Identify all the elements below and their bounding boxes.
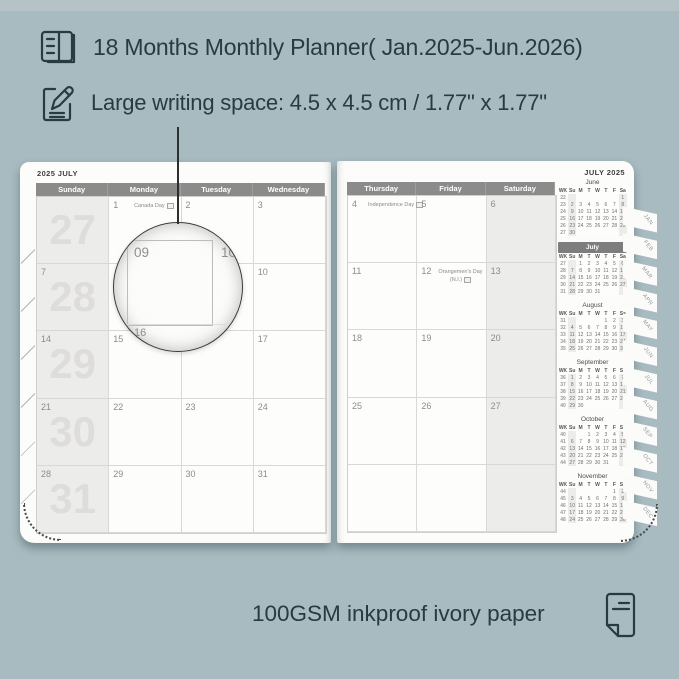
mini-day-number: [568, 317, 576, 324]
day-header-friday: Friday: [416, 182, 485, 195]
mini-day-number: 8: [602, 324, 610, 331]
mini-header-label: M: [576, 481, 584, 488]
mini-week-number: 48: [558, 516, 568, 523]
mini-day-number: 18: [593, 388, 601, 395]
mini-day-number: 14: [602, 502, 610, 509]
tab-may: MAY: [623, 313, 657, 340]
mini-week-number: 31: [558, 317, 568, 324]
day-cell: 5: [417, 196, 486, 263]
mini-day-number: 2: [593, 431, 601, 438]
mini-day-number: 2: [585, 260, 593, 267]
mini-week-number: 47: [558, 509, 568, 516]
mini-day-number: 10: [593, 267, 601, 274]
mini-header-label: Su: [568, 367, 576, 374]
day-number: 11: [352, 266, 361, 276]
holiday-note: Independence Day: [368, 201, 414, 209]
mini-day-number: 12: [585, 502, 593, 509]
tab-label: SEP: [642, 426, 654, 440]
tab-sep: SEP: [623, 420, 657, 447]
mini-day-number: 19: [593, 215, 601, 222]
mini-day-number: 28: [593, 345, 601, 352]
feature-writing-space-text: Large writing space: 4.5 x 4.5 cm / 1.77…: [91, 90, 547, 116]
mini-day-number: 13: [610, 381, 618, 388]
mini-day-number: 2: [568, 201, 576, 208]
mini-day-number: 16: [593, 445, 601, 452]
mini-day-number: [610, 459, 618, 466]
day-cell: [487, 465, 556, 532]
mini-month-grid: WKSuMTWTFSa36123456737891011121314381516…: [558, 367, 627, 409]
mini-day-number: 5: [610, 260, 618, 267]
mini-day-number: 6: [602, 201, 610, 208]
mini-day-number: 28: [610, 222, 618, 229]
magnifier-pointer-line: [177, 127, 179, 224]
mini-day-number: 14: [610, 208, 618, 215]
mini-month-august: AugustWKSuMTWTFSa31123324567891033111213…: [558, 301, 627, 352]
mini-day-number: 14: [593, 331, 601, 338]
mini-week-number: 29: [558, 274, 568, 281]
day-cell: 31: [254, 466, 326, 533]
mini-day-number: 24: [602, 452, 610, 459]
mini-day-number: [593, 317, 601, 324]
mini-day-number: [593, 488, 601, 495]
mini-day-number: 4: [602, 260, 610, 267]
mini-day-number: 18: [568, 338, 576, 345]
mini-month-september: SeptemberWKSuMTWTFSa36123456737891011121…: [558, 358, 627, 409]
tab-label: OCT: [641, 453, 654, 467]
mini-day-number: 13: [593, 502, 601, 509]
mini-day-number: 4: [585, 201, 593, 208]
mini-header-label: W: [593, 310, 601, 317]
tab-aug: AUG: [623, 393, 657, 420]
day-number: 10: [258, 267, 268, 277]
mini-day-number: 31: [602, 459, 610, 466]
day-cell: 4Independence Day: [348, 196, 417, 263]
mini-day-number: 18: [585, 215, 593, 222]
sunday-week-cell: 728: [37, 264, 109, 331]
mini-day-number: [585, 402, 593, 409]
mini-day-number: 24: [585, 395, 593, 402]
mini-header-label: Su: [568, 187, 576, 194]
magnified-day-number: 09: [134, 245, 149, 260]
mini-day-number: 17: [593, 274, 601, 281]
day-cell: [348, 465, 417, 532]
mini-day-number: 12: [576, 331, 584, 338]
mini-day-number: 25: [593, 395, 601, 402]
day-number: 31: [258, 469, 268, 479]
day-number: 1: [113, 200, 118, 210]
mini-day-number: 11: [576, 502, 584, 509]
magnifier-circle: 09 10 16: [113, 222, 243, 352]
mini-day-number: 2: [576, 374, 584, 381]
mini-week-number: 41: [558, 438, 568, 445]
mini-day-number: 14: [576, 445, 584, 452]
mini-month-title: November: [558, 472, 627, 481]
holiday-note: Orangemen's Day(N.I.): [437, 268, 483, 285]
mini-day-number: 25: [602, 281, 610, 288]
left-day-header-bar: SundayMondayTuesdayWednesday: [36, 183, 325, 196]
mini-day-number: [602, 194, 610, 201]
mini-day-number: 27: [593, 516, 601, 523]
mini-day-number: 15: [602, 331, 610, 338]
mini-header-label: W: [593, 187, 601, 194]
day-cell: 3: [254, 197, 326, 264]
mini-day-number: 13: [585, 331, 593, 338]
mini-day-number: 3: [568, 495, 576, 502]
mini-day-number: 25: [576, 516, 584, 523]
mini-day-number: 24: [593, 281, 601, 288]
week-number-watermark: 29: [37, 331, 108, 397]
day-cell: 29: [109, 466, 181, 533]
mini-day-number: 6: [585, 324, 593, 331]
mini-day-number: 12: [602, 381, 610, 388]
mini-day-number: 11: [568, 331, 576, 338]
mini-day-number: 23: [593, 452, 601, 459]
mini-day-number: 3: [593, 260, 601, 267]
mini-day-number: 18: [610, 445, 618, 452]
mini-week-number: 23: [558, 201, 568, 208]
mini-day-number: [568, 488, 576, 495]
day-cell: 12Orangemen's Day(N.I.): [417, 263, 486, 330]
mini-header-label: Sa: [619, 187, 627, 194]
page-curl-dots-left: [23, 503, 61, 541]
day-number: 29: [113, 469, 123, 479]
mini-header-label: WK: [558, 481, 568, 488]
mini-month-november: NovemberWKSuMTWTFSa441245345678946101112…: [558, 472, 627, 523]
day-number: 2: [186, 200, 191, 210]
mini-month-title: June: [558, 178, 627, 187]
day-cell: 23: [182, 399, 254, 466]
mini-day-number: 5: [602, 374, 610, 381]
mini-week-number: 37: [558, 381, 568, 388]
mini-header-label: Su: [568, 424, 576, 431]
mini-header-label: WK: [558, 187, 568, 194]
mini-day-number: 17: [568, 509, 576, 516]
mini-day-number: 23: [610, 338, 618, 345]
day-number: 18: [352, 333, 362, 343]
mini-header-label: Su: [568, 253, 576, 260]
mini-header-label: W: [593, 424, 601, 431]
day-header-tuesday: Tuesday: [181, 183, 253, 196]
mini-day-number: 8: [568, 381, 576, 388]
day-cell: 13: [487, 263, 556, 330]
mini-day-number: 22: [602, 338, 610, 345]
holiday-note: Canada Day: [129, 202, 178, 210]
day-cell: 11: [348, 263, 417, 330]
day-number: 15: [113, 334, 123, 344]
mini-day-number: 8: [585, 438, 593, 445]
mini-day-number: 7: [568, 267, 576, 274]
mini-day-number: 21: [593, 338, 601, 345]
mini-month-grid: WKSuMTWTFSa27123456287891011121329141516…: [558, 253, 627, 295]
mini-day-number: [568, 194, 576, 201]
magnified-below-day-number: 16: [134, 327, 146, 339]
mini-day-number: [610, 194, 618, 201]
mini-day-number: 16: [576, 388, 584, 395]
mini-day-number: 15: [576, 274, 584, 281]
mini-day-number: 23: [576, 395, 584, 402]
mini-week-number: 27: [558, 260, 568, 267]
mini-week-number: 44: [558, 488, 568, 495]
mini-header-label: T: [602, 481, 610, 488]
mini-day-number: 10: [585, 381, 593, 388]
page-edge-hatching: [21, 216, 35, 512]
mini-day-number: 1: [619, 194, 627, 201]
feature-planner-range-text: 18 Months Monthly Planner( Jan.2025-Jun.…: [93, 34, 583, 61]
mini-day-number: 22: [568, 395, 576, 402]
footer-paper-text: 100GSM inkproof ivory paper: [252, 601, 545, 627]
paper-sheet-icon: [598, 590, 640, 640]
mini-day-number: 27: [610, 395, 618, 402]
mini-day-number: 25: [585, 222, 593, 229]
mini-day-number: 9: [576, 381, 584, 388]
mini-month-title: August: [558, 301, 627, 310]
tab-label: FEB: [642, 240, 654, 253]
tab-label: AUG: [641, 399, 654, 413]
mini-week-number: 42: [558, 445, 568, 452]
right-day-header-bar: ThursdayFridaySaturday: [347, 182, 555, 195]
mini-day-number: 7: [610, 201, 618, 208]
mini-day-number: 23: [568, 222, 576, 229]
mini-day-number: [576, 194, 584, 201]
mini-header-label: T: [602, 367, 610, 374]
planner-book-icon: [37, 26, 79, 68]
mini-day-number: 28: [602, 516, 610, 523]
mini-header-label: T: [602, 424, 610, 431]
sunday-week-cell: 1429: [37, 331, 109, 398]
mini-day-number: 8: [610, 495, 618, 502]
mini-day-number: [602, 288, 610, 295]
mini-week-number: 39: [558, 395, 568, 402]
right-month-grid: 4Independence Day561112Orangemen's Day(N…: [347, 195, 557, 533]
mini-day-number: 5: [576, 324, 584, 331]
mini-header-label: WK: [558, 310, 568, 317]
mini-week-number: 34: [558, 338, 568, 345]
mini-day-number: 5: [585, 495, 593, 502]
day-header-wednesday: Wednesday: [253, 183, 325, 196]
mini-day-number: 21: [610, 215, 618, 222]
mini-day-number: 9: [593, 438, 601, 445]
sunday-week-cell: 27: [37, 197, 109, 264]
mini-day-number: 20: [593, 509, 601, 516]
day-cell: 30: [182, 466, 254, 533]
mini-day-number: 14: [568, 274, 576, 281]
mini-day-number: 13: [568, 445, 576, 452]
flag-icon: [464, 277, 471, 283]
mini-week-number: 36: [558, 374, 568, 381]
mini-week-number: 25: [558, 215, 568, 222]
mini-day-number: 22: [576, 281, 584, 288]
mini-day-number: [602, 402, 610, 409]
mini-day-number: 11: [602, 267, 610, 274]
mini-day-number: [585, 194, 593, 201]
day-header-saturday: Saturday: [486, 182, 555, 195]
mini-month-october: OctoberWKSuMTWTFSa4012345416789101112421…: [558, 415, 627, 466]
mini-week-number: 40: [558, 431, 568, 438]
tab-jan: JAN: [623, 206, 657, 233]
mini-day-number: [576, 229, 584, 236]
day-cell: 20: [487, 330, 556, 397]
mini-header-label: WK: [558, 424, 568, 431]
mini-day-number: 1: [585, 431, 593, 438]
mini-day-number: 15: [568, 388, 576, 395]
week-number-watermark: 27: [37, 197, 108, 263]
mini-month-grid: WKSuMTWTFSa44124534567894610111213141516…: [558, 481, 627, 523]
mini-day-number: [593, 194, 601, 201]
right-page-title: JULY 2025: [584, 168, 625, 177]
planner-product-image: 18 Months Monthly Planner( Jan.2025-Jun.…: [0, 0, 679, 679]
magnified-gridline: [114, 324, 242, 325]
mini-day-number: 13: [602, 208, 610, 215]
mini-header-label: T: [585, 310, 593, 317]
mini-week-number: 40: [558, 402, 568, 409]
mini-week-number: 30: [558, 281, 568, 288]
mini-day-number: 29: [585, 459, 593, 466]
mini-week-number: 35: [558, 345, 568, 352]
mini-day-number: 12: [593, 208, 601, 215]
day-number: 26: [421, 401, 431, 411]
mini-month-july: JulyWKSuMTWTFSa2712345628789101112132914…: [558, 242, 627, 295]
mini-day-number: 16: [585, 274, 593, 281]
mini-day-number: 4: [610, 431, 618, 438]
mini-week-number: 24: [558, 208, 568, 215]
mini-header-label: F: [610, 367, 618, 374]
mini-week-number: 44: [558, 459, 568, 466]
mini-day-number: 10: [568, 502, 576, 509]
mini-header-label: T: [585, 253, 593, 260]
mini-day-number: 24: [568, 516, 576, 523]
mini-header-label: M: [576, 253, 584, 260]
mini-day-number: 18: [576, 509, 584, 516]
tab-label: JUL: [643, 373, 655, 386]
mini-day-number: [593, 229, 601, 236]
mini-day-number: [585, 488, 593, 495]
mini-day-number: 16: [610, 331, 618, 338]
background-top-strip: [0, 0, 679, 11]
mini-day-number: 15: [585, 445, 593, 452]
mini-day-number: [593, 402, 601, 409]
mini-header-label: F: [610, 481, 618, 488]
mini-day-number: [576, 488, 584, 495]
mini-month-grid: WKSuMTWTFSa40123454167891011124213141516…: [558, 424, 627, 466]
planner-right-page: JULY 2025 ThursdayFridaySaturday 4Indepe…: [337, 161, 634, 543]
mini-day-number: 4: [576, 495, 584, 502]
mini-day-number: 7: [576, 438, 584, 445]
mini-month-title: September: [558, 358, 627, 367]
mini-week-number: 38: [558, 388, 568, 395]
mini-day-number: 26: [576, 345, 584, 352]
mini-day-number: 7: [602, 495, 610, 502]
mini-day-number: 26: [593, 222, 601, 229]
day-cell: 18: [348, 330, 417, 397]
mini-day-number: 7: [593, 324, 601, 331]
mini-day-number: 11: [593, 381, 601, 388]
mini-header-label: WK: [558, 253, 568, 260]
mini-day-number: 1: [568, 374, 576, 381]
mini-header-label: M: [576, 424, 584, 431]
mini-day-number: 30: [576, 402, 584, 409]
mini-month-title: July: [558, 242, 627, 253]
tab-feb: FEB: [623, 233, 657, 260]
mini-day-number: 22: [585, 452, 593, 459]
mini-day-number: 19: [610, 274, 618, 281]
mini-header-label: T: [585, 424, 593, 431]
mini-day-number: 19: [602, 388, 610, 395]
day-number: 22: [113, 402, 123, 412]
tab-label: JAN: [642, 213, 654, 226]
mini-day-number: [568, 260, 576, 267]
mini-day-number: 18: [602, 274, 610, 281]
mini-day-number: 28: [568, 288, 576, 295]
tab-oct: OCT: [623, 446, 657, 473]
mini-day-number: 3: [576, 201, 584, 208]
day-cell: 26: [417, 398, 486, 465]
mini-day-number: [576, 431, 584, 438]
day-number: 30: [186, 469, 196, 479]
week-number-watermark: 28: [37, 264, 108, 330]
mini-day-number: 20: [602, 215, 610, 222]
day-number: 23: [186, 402, 196, 412]
mini-header-label: F: [610, 310, 618, 317]
tab-mar: MAR: [623, 259, 657, 286]
mini-header-label: F: [610, 253, 618, 260]
mini-calendar-sidebar: JuneWKSuMTWTFSa2212323456782491011121314…: [558, 178, 627, 534]
mini-week-number: 27: [558, 229, 568, 236]
mini-day-number: 8: [576, 267, 584, 274]
mini-day-number: 24: [576, 222, 584, 229]
mini-day-number: 12: [610, 267, 618, 274]
mini-day-number: [610, 288, 618, 295]
mini-day-number: 1: [610, 488, 618, 495]
mini-day-number: 25: [610, 452, 618, 459]
mini-day-number: 17: [585, 388, 593, 395]
mini-month-title: October: [558, 415, 627, 424]
sunday-week-cell: 2130: [37, 399, 109, 466]
day-cell: [417, 465, 486, 532]
mini-day-number: 29: [610, 516, 618, 523]
day-number: 19: [421, 333, 431, 343]
mini-day-number: 27: [602, 222, 610, 229]
left-page-title: 2025 JULY: [37, 169, 78, 178]
tab-jul: JUL: [623, 366, 657, 393]
mini-header-label: M: [576, 187, 584, 194]
mini-day-number: 3: [585, 374, 593, 381]
mini-day-number: 17: [602, 445, 610, 452]
tab-jun: JUN: [623, 340, 657, 367]
mini-day-number: 21: [568, 281, 576, 288]
mini-day-number: 27: [585, 345, 593, 352]
day-number: 13: [491, 266, 501, 276]
mini-day-number: 27: [568, 459, 576, 466]
mini-week-number: 46: [558, 502, 568, 509]
mini-week-number: 33: [558, 331, 568, 338]
day-cell: 17: [254, 331, 326, 398]
day-number: 20: [491, 333, 501, 343]
mini-header-label: W: [593, 253, 601, 260]
mini-header-label: Su: [568, 481, 576, 488]
mini-day-number: [602, 229, 610, 236]
tab-label: MAY: [641, 319, 654, 333]
mini-day-number: 25: [568, 345, 576, 352]
mini-day-number: 21: [576, 452, 584, 459]
mini-header-label: WK: [558, 367, 568, 374]
tab-label: NOV: [641, 479, 654, 493]
day-cell: 24: [254, 399, 326, 466]
mini-month-grid: WKSuMTWTFSa31123324567891033111213141516…: [558, 310, 627, 352]
mini-header-label: T: [602, 310, 610, 317]
mini-header-label: W: [593, 367, 601, 374]
mini-day-number: [610, 229, 618, 236]
mini-header-label: F: [610, 187, 618, 194]
